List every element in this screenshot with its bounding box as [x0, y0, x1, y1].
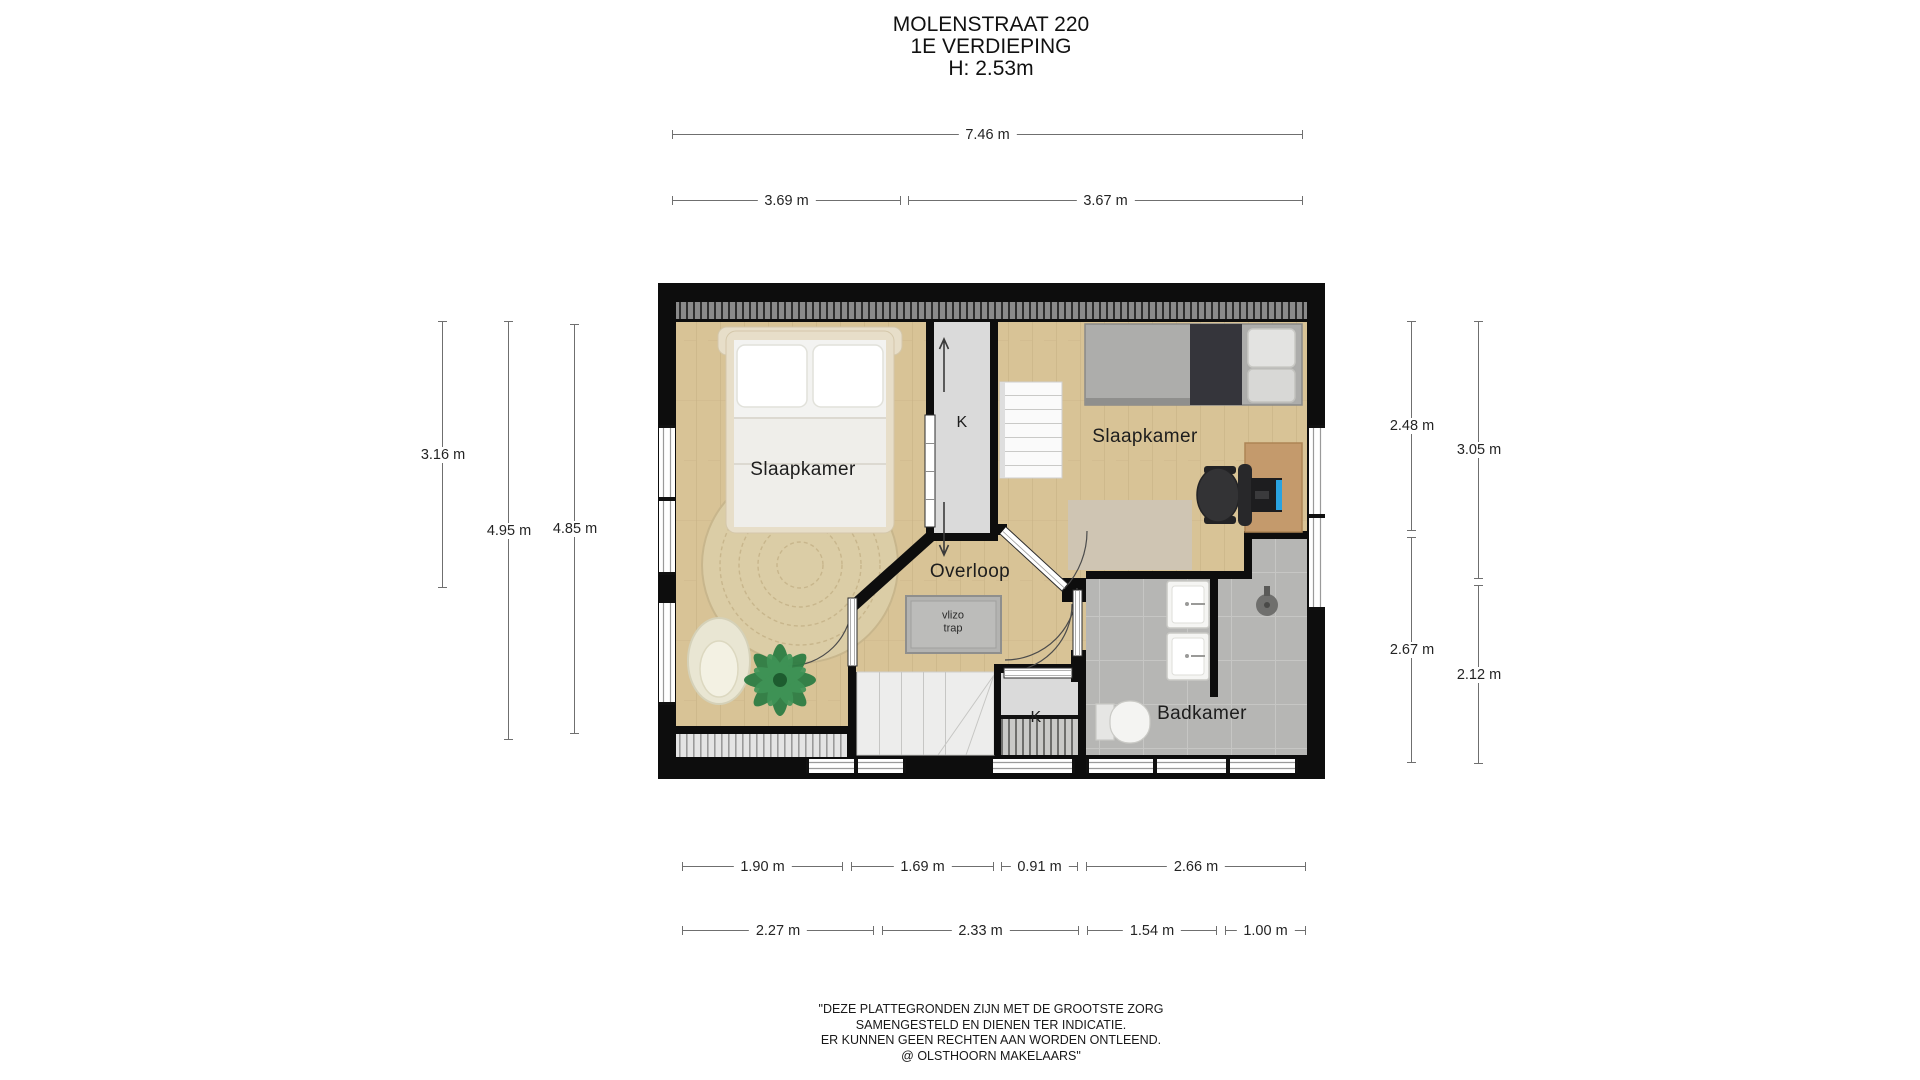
dim-bottom2-4: 1.00 m: [1225, 930, 1306, 931]
dim-bottom1-2: 1.69 m: [851, 866, 994, 867]
disclaimer: "DEZE PLATTEGRONDEN ZIJN MET DE GROOTSTE…: [819, 1002, 1164, 1064]
dim-right-bottom-outer: 2.12 m: [1478, 585, 1479, 764]
roof-hatch-top: [676, 299, 1307, 322]
desk-chair: [1197, 464, 1252, 526]
lounge-chair: [688, 618, 750, 704]
dim-left-mid: 4.95 m: [508, 321, 509, 740]
dim-bottom2-3: 1.54 m: [1087, 930, 1217, 931]
disclaimer-line2: SAMENGESTELD EN DIENEN TER INDICATIE.: [819, 1018, 1164, 1034]
window-left-lower: [659, 600, 675, 705]
window-left-upper: [659, 425, 675, 575]
label-landing: Overloop: [930, 561, 1010, 583]
dim-right-bottom-inner: 2.67 m: [1411, 537, 1412, 763]
laptop: [1251, 478, 1282, 512]
door-closet-top: [925, 415, 935, 527]
dim-bottom1-4: 2.66 m: [1086, 866, 1306, 867]
loft-hatch-line2: trap: [942, 622, 964, 635]
dim-width-left: 3.69 m: [672, 200, 901, 201]
stairs-lower: [857, 672, 994, 755]
ceiling-height: H: 2.53m: [893, 58, 1089, 80]
roof-hatch-bottom-left: [676, 726, 847, 757]
label-bathroom: Badkamer: [1157, 703, 1247, 725]
label-bedroom-right: Slaapkamer: [1092, 426, 1197, 448]
dim-left-outer: 4.85 m: [574, 324, 575, 734]
disclaimer-line4: @ OLSTHOORN MAKELAARS": [819, 1049, 1164, 1065]
dim-right-top-outer: 3.05 m: [1478, 321, 1479, 579]
floorplan-page: MOLENSTRAAT 220 1E VERDIEPING H: 2.53m: [0, 0, 1920, 1080]
window-bottom-bathroom: [1086, 759, 1298, 773]
loft-hatch-line1: vlizo: [942, 610, 964, 623]
dim-left-inner: 3.16 m: [442, 321, 443, 588]
disclaimer-line1: "DEZE PLATTEGRONDEN ZIJN MET DE GROOTSTE…: [819, 1002, 1164, 1018]
dim-right-top-inner: 2.48 m: [1411, 321, 1412, 531]
label-loft-hatch: vlizo trap: [942, 610, 964, 635]
dim-bottom2-2: 2.33 m: [882, 930, 1079, 931]
toilet: [1096, 701, 1150, 743]
sink-top: [1167, 581, 1209, 628]
label-closet-top: K: [956, 414, 967, 432]
floor-subtitle: 1E VERDIEPING: [893, 36, 1089, 58]
dim-bottom1-1: 1.90 m: [682, 866, 843, 867]
window-right: [1309, 425, 1325, 610]
page-title: MOLENSTRAAT 220: [893, 14, 1089, 36]
dim-total-width: 7.46 m: [672, 134, 1303, 135]
palm-plant: [744, 644, 816, 716]
sink-bottom: [1167, 633, 1209, 680]
label-bedroom-left: Slaapkamer: [750, 459, 855, 481]
window-bottom-closet: [990, 759, 1075, 773]
label-closet-bottom: K: [1030, 709, 1041, 727]
double-bed: [718, 327, 902, 533]
dim-bottom2-1: 2.27 m: [682, 930, 874, 931]
window-bottom-stairs: [806, 759, 906, 773]
title-block: MOLENSTRAAT 220 1E VERDIEPING H: 2.53m: [893, 14, 1089, 80]
dim-width-right: 3.67 m: [908, 200, 1303, 201]
single-bed: [1085, 324, 1302, 405]
dim-bottom1-3: 0.91 m: [1001, 866, 1078, 867]
disclaimer-line3: ER KUNNEN GEEN RECHTEN AAN WORDEN ONTLEE…: [819, 1033, 1164, 1049]
stairs-upper: [1000, 382, 1062, 478]
